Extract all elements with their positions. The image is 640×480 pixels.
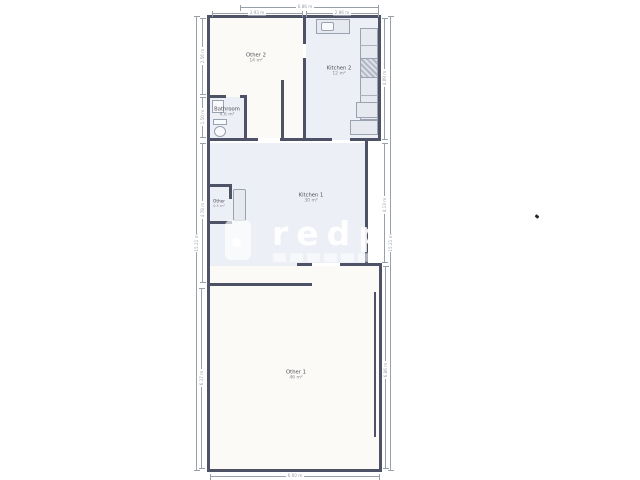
- room-area: 4.6 m²: [210, 112, 245, 117]
- dim-label: 4.78 m: [201, 201, 206, 219]
- room-area: 30 m²: [289, 198, 334, 203]
- wall-other2-inner: [281, 80, 284, 138]
- room-label-other1: Other 1 46 m²: [274, 369, 319, 380]
- dim-label: 6.17 m: [200, 369, 205, 387]
- watermark-brand-text: redp: [272, 217, 381, 251]
- kitchen2-counter-divider: [360, 45, 378, 46]
- wall-exterior-bottom: [207, 469, 382, 472]
- room-label-closet: Other 0.5 m²: [204, 199, 234, 208]
- dim-label: 2.86 m: [333, 11, 351, 16]
- room-area: 12 m²: [317, 71, 362, 76]
- dim-label: 15.21 m: [195, 234, 200, 252]
- dim-label: 1.50 m: [201, 108, 206, 126]
- wall-topblock-bottom-seg2: [280, 138, 332, 141]
- toilet-bowl-icon: [214, 126, 226, 137]
- wall-exterior-top: [207, 15, 381, 18]
- room-label-bathroom: Bathroom 4.6 m²: [210, 106, 245, 117]
- dim-label: 3.93 m: [248, 11, 266, 16]
- room-label-kitchen2: Kitchen 2 12 m²: [317, 65, 362, 76]
- room-area: 14 m²: [234, 58, 279, 63]
- wall-midblock-bottom: [207, 283, 312, 286]
- wall-exterior-left-bottom: [207, 286, 210, 469]
- kitchen2-cabinet-lower-icon: [350, 120, 378, 135]
- wall-topblock-bottom-seg3: [350, 138, 381, 141]
- kitchen2-sink-basin-icon: [321, 22, 334, 31]
- kitchen2-cabinet-icon: [356, 102, 378, 118]
- wall-other1-inner: [374, 292, 376, 437]
- wall-exterior-right-bottom: [379, 263, 382, 469]
- toilet-tank-icon: [213, 119, 227, 125]
- room-area: 46 m²: [274, 375, 319, 380]
- wall-exterior-left-top: [207, 18, 210, 138]
- wall-closet-right: [229, 187, 232, 199]
- dim-label: 15.21 m: [389, 234, 394, 252]
- dim-label: 6.86 m: [296, 5, 314, 10]
- stove-icon: [360, 58, 378, 78]
- watermark: redp: [225, 216, 381, 266]
- dim-label: 4.09 m: [383, 69, 388, 87]
- dim-label: 6.86 m: [384, 361, 389, 379]
- dim-label: 6.60 m: [286, 474, 304, 479]
- room-label-other2: Other 2 14 m²: [234, 52, 279, 63]
- dim-label: 4.13 m: [383, 196, 388, 214]
- wall-divider-other2-kitchen2-upper: [303, 18, 306, 44]
- wall-divider-other2-kitchen2-lower: [303, 58, 306, 138]
- kitchen2-counter-divider: [360, 95, 378, 96]
- watermark-subline: [273, 253, 379, 262]
- wall-topblock-bottom-seg1: [207, 138, 258, 141]
- room-area: 0.5 m²: [204, 204, 234, 208]
- wall-bathroom-top: [207, 95, 226, 98]
- watermark-logo-dot-icon: [232, 238, 241, 247]
- wall-exterior-right-top: [378, 18, 381, 140]
- wall-exterior-left-mid: [207, 141, 210, 283]
- floorplan-canvas: Other 2 14 m² Kitchen 2 12 m² Bathroom 4…: [0, 0, 640, 480]
- room-label-kitchen1: Kitchen 1 30 m²: [289, 192, 334, 203]
- stray-mark: [535, 214, 540, 219]
- wall-bathroom-right: [244, 98, 247, 138]
- room-other1-floor: [210, 266, 379, 469]
- dim-label: 2.56 m: [201, 47, 206, 65]
